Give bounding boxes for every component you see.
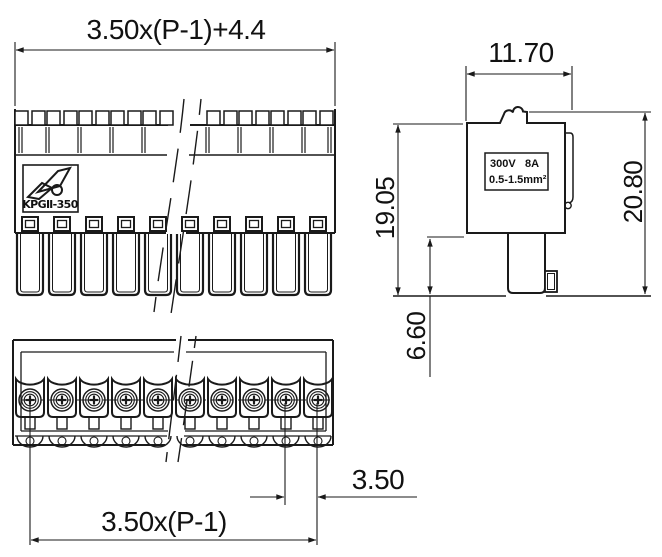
drawing-canvas: KPGⅡ-350 300V 8A 0.5-1.5mm²: [0, 0, 662, 557]
rating-voltage: 300V: [490, 158, 516, 170]
dim-side-width-label: 11.70: [488, 37, 554, 68]
dim-pin-length-label: 6.60: [401, 312, 431, 361]
rating-current: 8A: [525, 158, 539, 170]
dim-pitch-label: 3.50: [352, 464, 405, 495]
dim-span-label: 3.50x(P-1): [101, 506, 227, 537]
logo-model-text: KPGⅡ-350: [22, 198, 79, 211]
technical-drawing: KPGⅡ-350 300V 8A 0.5-1.5mm²: [0, 0, 662, 557]
rating-label: 300V 8A 0.5-1.5mm²: [485, 153, 548, 190]
dim-top-width-label: 3.50x(P-1)+4.4: [87, 14, 266, 45]
brand-logo: KPGⅡ-350: [22, 165, 79, 212]
side-pin-boss: [545, 271, 557, 292]
dim-total-height-label: 20.80: [618, 161, 648, 224]
dim-body-height-label: 19.05: [370, 177, 400, 240]
rating-wire-range: 0.5-1.5mm²: [489, 174, 547, 186]
